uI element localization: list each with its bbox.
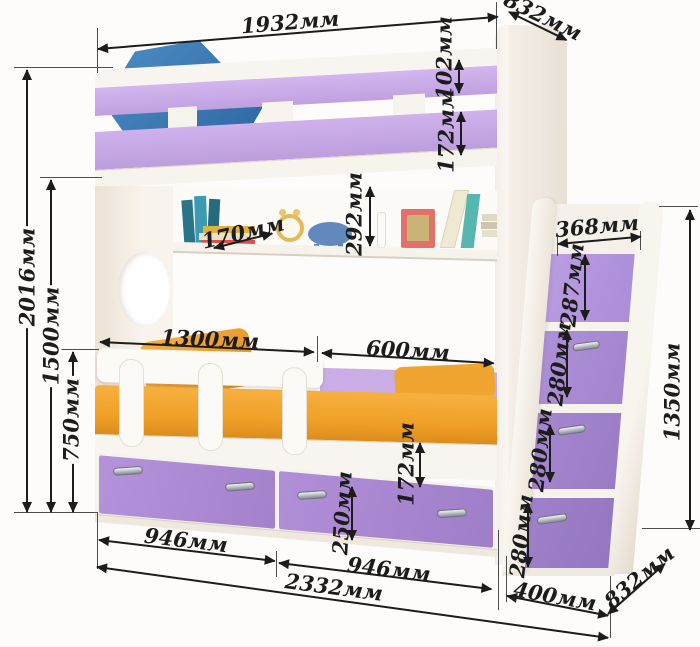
- porthole-window: [118, 252, 170, 326]
- extension-line: [496, 2, 497, 49]
- dim-line-shelf-opening-height: [369, 187, 371, 246]
- book-stack-decoration: [482, 214, 497, 221]
- book-stack-decoration: [482, 230, 497, 237]
- dim-line-upper-guard-height: [460, 112, 462, 155]
- photo-frame-decoration: [407, 215, 429, 241]
- extension-line: [498, 530, 499, 610]
- book-stack-decoration: [481, 222, 497, 229]
- extension-line: [659, 206, 698, 207]
- guard-rail-slat: [119, 359, 144, 448]
- bunk-bed-dimension-diagram: 1932мм 832мм 102мм 172мм 2016мм 1500мм 7…: [0, 0, 700, 647]
- extension-line: [14, 67, 113, 68]
- dim-label-base-frame-height: 172мм: [396, 420, 417, 508]
- dim-label-shelf-opening-height: 292мм: [344, 170, 365, 258]
- dim-label-lower-guard-length: 1300мм: [158, 326, 261, 351]
- guard-rail-slat: [198, 363, 223, 452]
- dim-label-ladder-base-width: 400мм: [510, 578, 600, 614]
- guard-rail-slat: [282, 367, 307, 456]
- dim-label-upper-guard-height: 172мм: [436, 87, 457, 175]
- dim-label-upper-bed-height: 1500мм: [41, 285, 62, 387]
- dim-line-ladder-height: [689, 210, 691, 530]
- dim-line-base-frame-height: [419, 443, 421, 487]
- dim-label-lower-opening-length: 600мм: [364, 337, 453, 363]
- dim-label-total-height: 2016мм: [17, 226, 38, 328]
- dim-line-top-rail-height: [458, 60, 460, 93]
- dim-label-ladder-height: 1350мм: [662, 341, 683, 443]
- extension-line: [317, 336, 318, 362]
- candle-decoration: [377, 212, 386, 248]
- extension-line: [40, 177, 102, 178]
- dim-label-lower-rail-height: 750мм: [61, 376, 82, 464]
- dim-label-drawer-height: 250мм: [329, 469, 355, 558]
